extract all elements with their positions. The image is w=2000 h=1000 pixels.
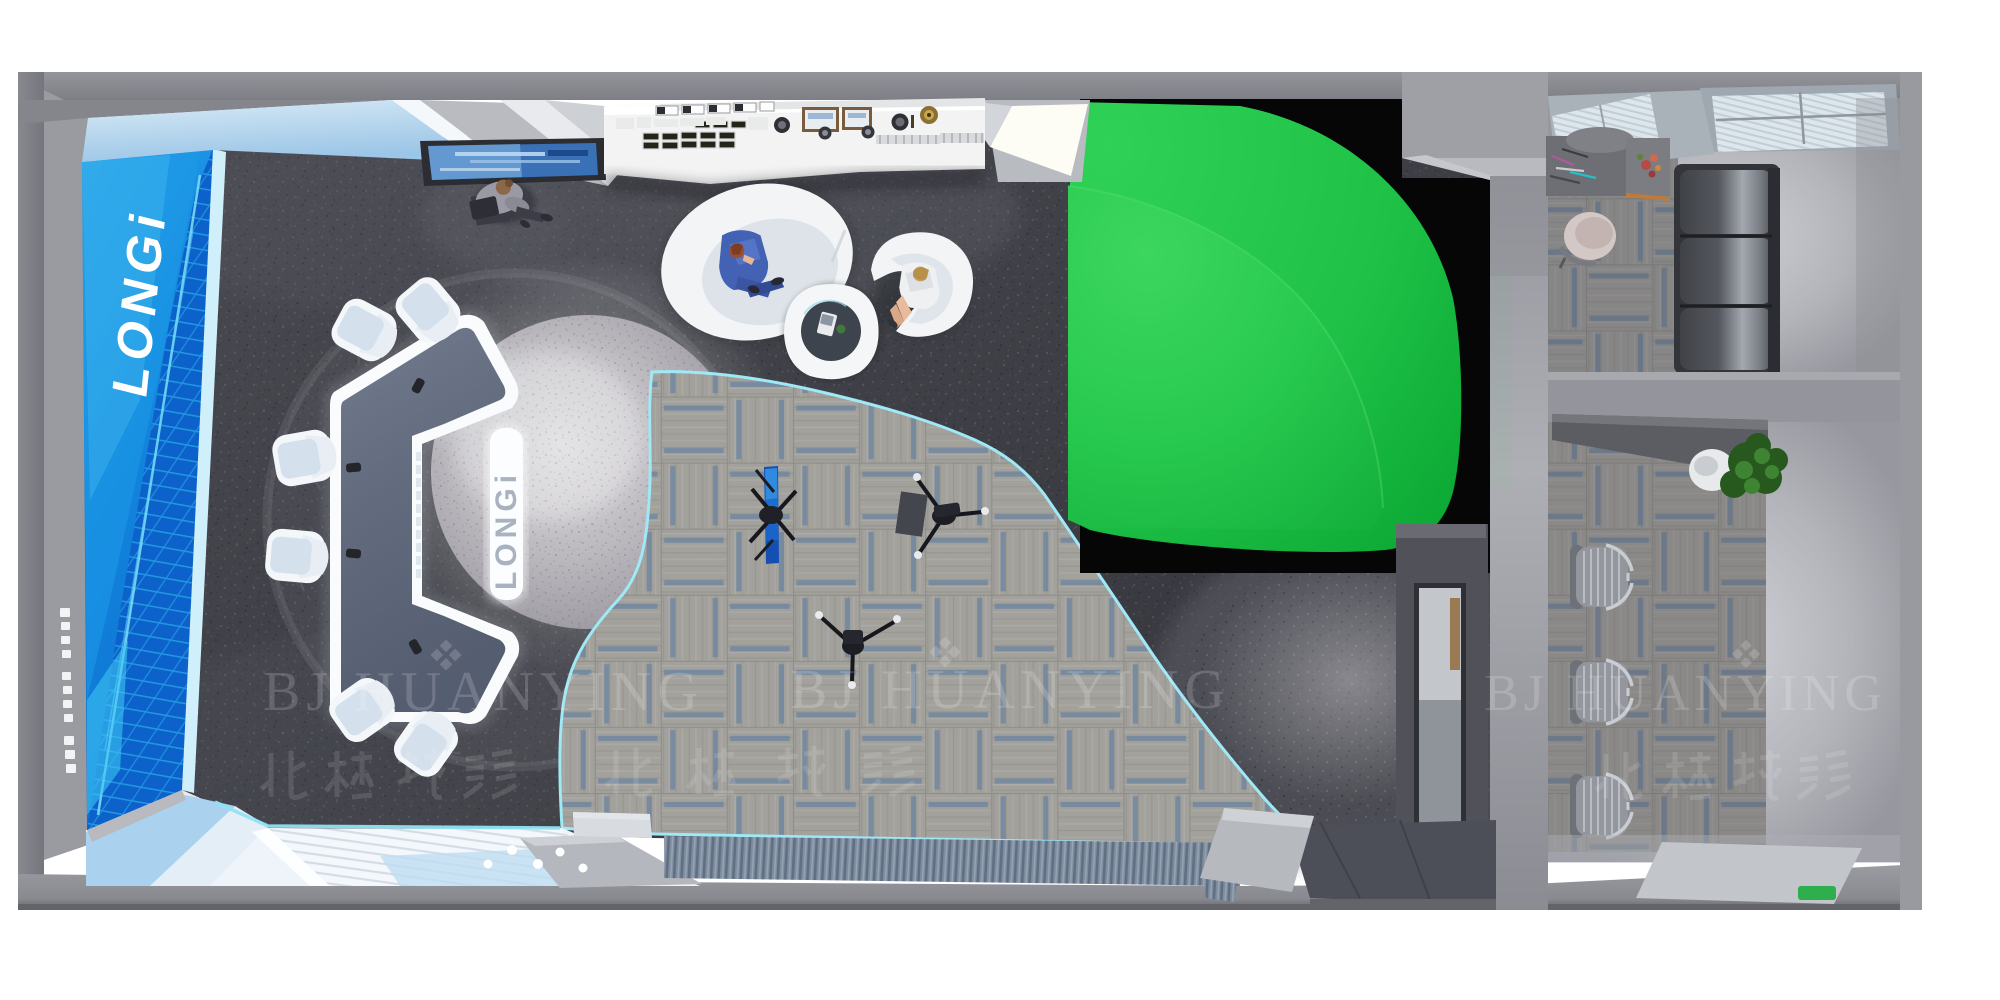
svg-text:LONGi: LONGi: [490, 470, 523, 590]
svg-text:BJ HUANYING: BJ HUANYING: [1484, 665, 1887, 722]
svg-text:BJ HUANYING: BJ HUANYING: [263, 661, 704, 723]
svg-text:BJ HUANYING: BJ HUANYING: [790, 659, 1231, 721]
